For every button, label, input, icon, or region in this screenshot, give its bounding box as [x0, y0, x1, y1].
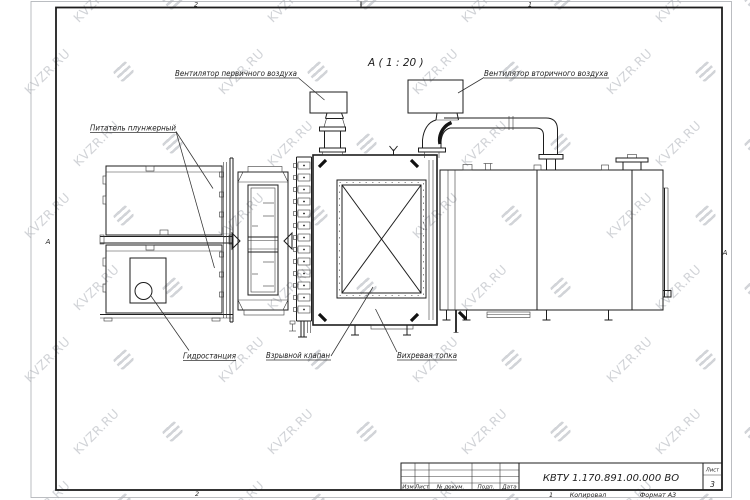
discharge-frame	[232, 167, 292, 316]
callout-hydraulic-station: Гидростанция	[183, 351, 236, 361]
explosion-valve-panel	[337, 180, 426, 298]
tb-col-izm: Изм	[402, 484, 414, 490]
callout-explosion-valve: Взрывной клапан	[266, 350, 331, 360]
leader-hydraulic-station	[151, 296, 189, 351]
leader-primary-fan	[298, 78, 325, 101]
hydraulic-station-box	[130, 258, 166, 303]
feeder-boxes	[100, 166, 233, 321]
air-duct	[419, 116, 564, 170]
leader-vortex-furnace	[376, 309, 398, 352]
tb-sheet-number: 3	[710, 480, 715, 489]
title-block: Изм Лист № докум. Подп. Дата КВТУ 1.170.…	[401, 463, 722, 490]
technical-drawing: 2 1 2 А А А ( 1 : 20 )	[0, 0, 750, 500]
zone-top-right: 1	[528, 0, 532, 8]
footer-zone: 1	[549, 491, 553, 499]
view-label: А ( 1 : 20 )	[367, 57, 424, 69]
drawing-sheet: KVZR.RUKVZR.RUKVZR.RUKVZR.RUKVZR.RUKVZR.…	[0, 0, 750, 500]
tb-doc-number: КВТУ 1.170.891.00.000 ВО	[543, 473, 679, 484]
sheet-frame: 2 1 2 А А	[31, 0, 732, 498]
callout-plunger-feeder: Питатель плунжерный	[90, 123, 177, 133]
leader-plunger-feeder-1	[176, 132, 213, 189]
row-marker-right: А	[722, 249, 728, 257]
boiler-body	[440, 155, 671, 333]
callout-labels: Вентилятор первичного воздуха Вентилятор…	[90, 68, 609, 361]
vortex-furnace	[313, 146, 437, 335]
zone-bottom-left: 2	[195, 490, 199, 498]
footer-copied: Копировал	[570, 491, 607, 499]
tb-col-list: Лист	[414, 484, 430, 490]
leader-plunger-feeder-2	[176, 132, 215, 269]
tb-sheet-label: Лист	[705, 468, 720, 474]
secondary-air-fan	[408, 80, 463, 120]
footer-format: Формат А3	[640, 491, 676, 499]
furnace-top-valve	[390, 146, 398, 155]
zone-top-left: 2	[194, 0, 198, 8]
callout-vortex-furnace: Вихревая топка	[397, 350, 457, 360]
hydraulic-station-circle	[135, 283, 152, 300]
callout-secondary-fan: Вентилятор вторичного воздуха	[484, 68, 608, 78]
tb-col-podp: Подп.	[478, 484, 495, 490]
chimney-stub	[616, 155, 648, 171]
callout-primary-fan: Вентилятор первичного воздуха	[175, 68, 297, 78]
tb-col-dokum: № докум.	[436, 484, 465, 490]
row-marker-left: А	[45, 238, 51, 246]
tb-col-data: Дата	[501, 484, 517, 490]
primary-air-fan	[310, 92, 347, 155]
